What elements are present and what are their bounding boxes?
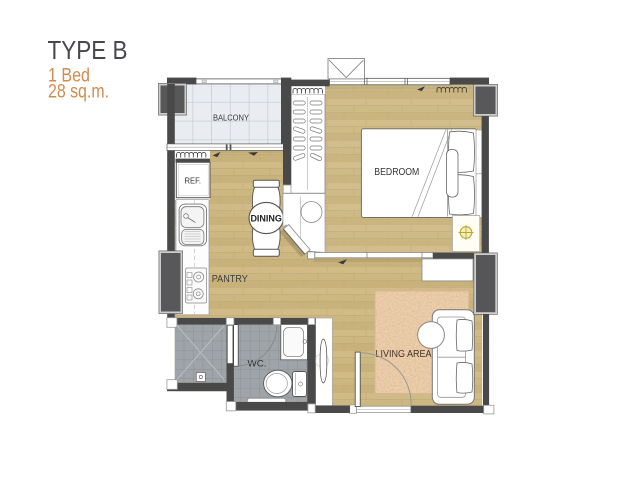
svg-text:TYPE B: TYPE B	[48, 35, 128, 65]
svg-text:REF.: REF.	[185, 177, 202, 186]
svg-text:DINING: DINING	[250, 214, 282, 224]
svg-text:BEDROOM: BEDROOM	[374, 167, 419, 178]
svg-text:28 sq.m.: 28 sq.m.	[48, 82, 109, 103]
svg-text:BALCONY: BALCONY	[213, 113, 249, 123]
svg-text:PANTRY: PANTRY	[212, 274, 248, 285]
